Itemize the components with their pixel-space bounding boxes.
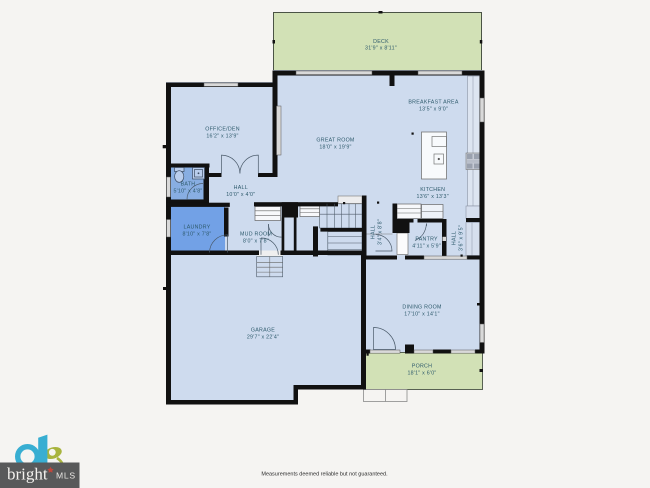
- svg-text:8'10" x 7'8": 8'10" x 7'8": [182, 232, 211, 238]
- svg-text:BATH: BATH: [181, 182, 196, 188]
- svg-text:KITCHEN: KITCHEN: [420, 187, 445, 193]
- svg-text:Measurements deemed reliable b: Measurements deemed reliable but not gua…: [261, 472, 388, 478]
- svg-text:10'0" x 4'0": 10'0" x 4'0": [226, 192, 255, 198]
- svg-text:DECK: DECK: [373, 39, 389, 45]
- svg-text:MLS: MLS: [56, 471, 76, 481]
- svg-text:LAUNDRY: LAUNDRY: [184, 225, 211, 231]
- svg-text:MUD ROOM: MUD ROOM: [240, 232, 272, 238]
- svg-text:18'0" x 19'9": 18'0" x 19'9": [319, 144, 351, 150]
- svg-text:13'6" x 13'3": 13'6" x 13'3": [417, 194, 449, 200]
- svg-text:8'0" x 7'8": 8'0" x 7'8": [243, 239, 269, 245]
- svg-text:bright: bright: [7, 465, 48, 484]
- svg-text:3'6" x 9'5": 3'6" x 9'5": [459, 225, 465, 251]
- svg-text:17'10" x 14'1": 17'10" x 14'1": [404, 312, 440, 318]
- svg-text:31'9" x 8'11": 31'9" x 8'11": [365, 46, 397, 52]
- svg-text:HALL: HALL: [371, 225, 377, 239]
- svg-text:3'4" x 8'8": 3'4" x 8'8": [378, 219, 384, 245]
- svg-text:HALL: HALL: [452, 231, 458, 245]
- svg-text:HALL: HALL: [234, 185, 248, 191]
- svg-text:OFFICE/DEN: OFFICE/DEN: [205, 126, 240, 132]
- svg-text:13'5" x 9'0": 13'5" x 9'0": [419, 106, 448, 112]
- svg-text:PANTRY: PANTRY: [415, 237, 438, 243]
- svg-text:18'1" x 6'0": 18'1" x 6'0": [407, 370, 436, 376]
- svg-text:BREAKFAST AREA: BREAKFAST AREA: [408, 99, 458, 105]
- svg-text:16'2" x 13'9": 16'2" x 13'9": [206, 133, 238, 139]
- svg-text:29'7" x 22'4": 29'7" x 22'4": [247, 335, 279, 341]
- svg-text:4'11" x 5'9": 4'11" x 5'9": [412, 244, 441, 250]
- svg-text:DINING ROOM: DINING ROOM: [402, 305, 441, 311]
- svg-text:GARAGE: GARAGE: [251, 328, 275, 334]
- svg-text:PORCH: PORCH: [412, 363, 432, 369]
- svg-text:5'10" x 4'8": 5'10" x 4'8": [173, 189, 202, 195]
- svg-text:GREAT ROOM: GREAT ROOM: [316, 137, 354, 143]
